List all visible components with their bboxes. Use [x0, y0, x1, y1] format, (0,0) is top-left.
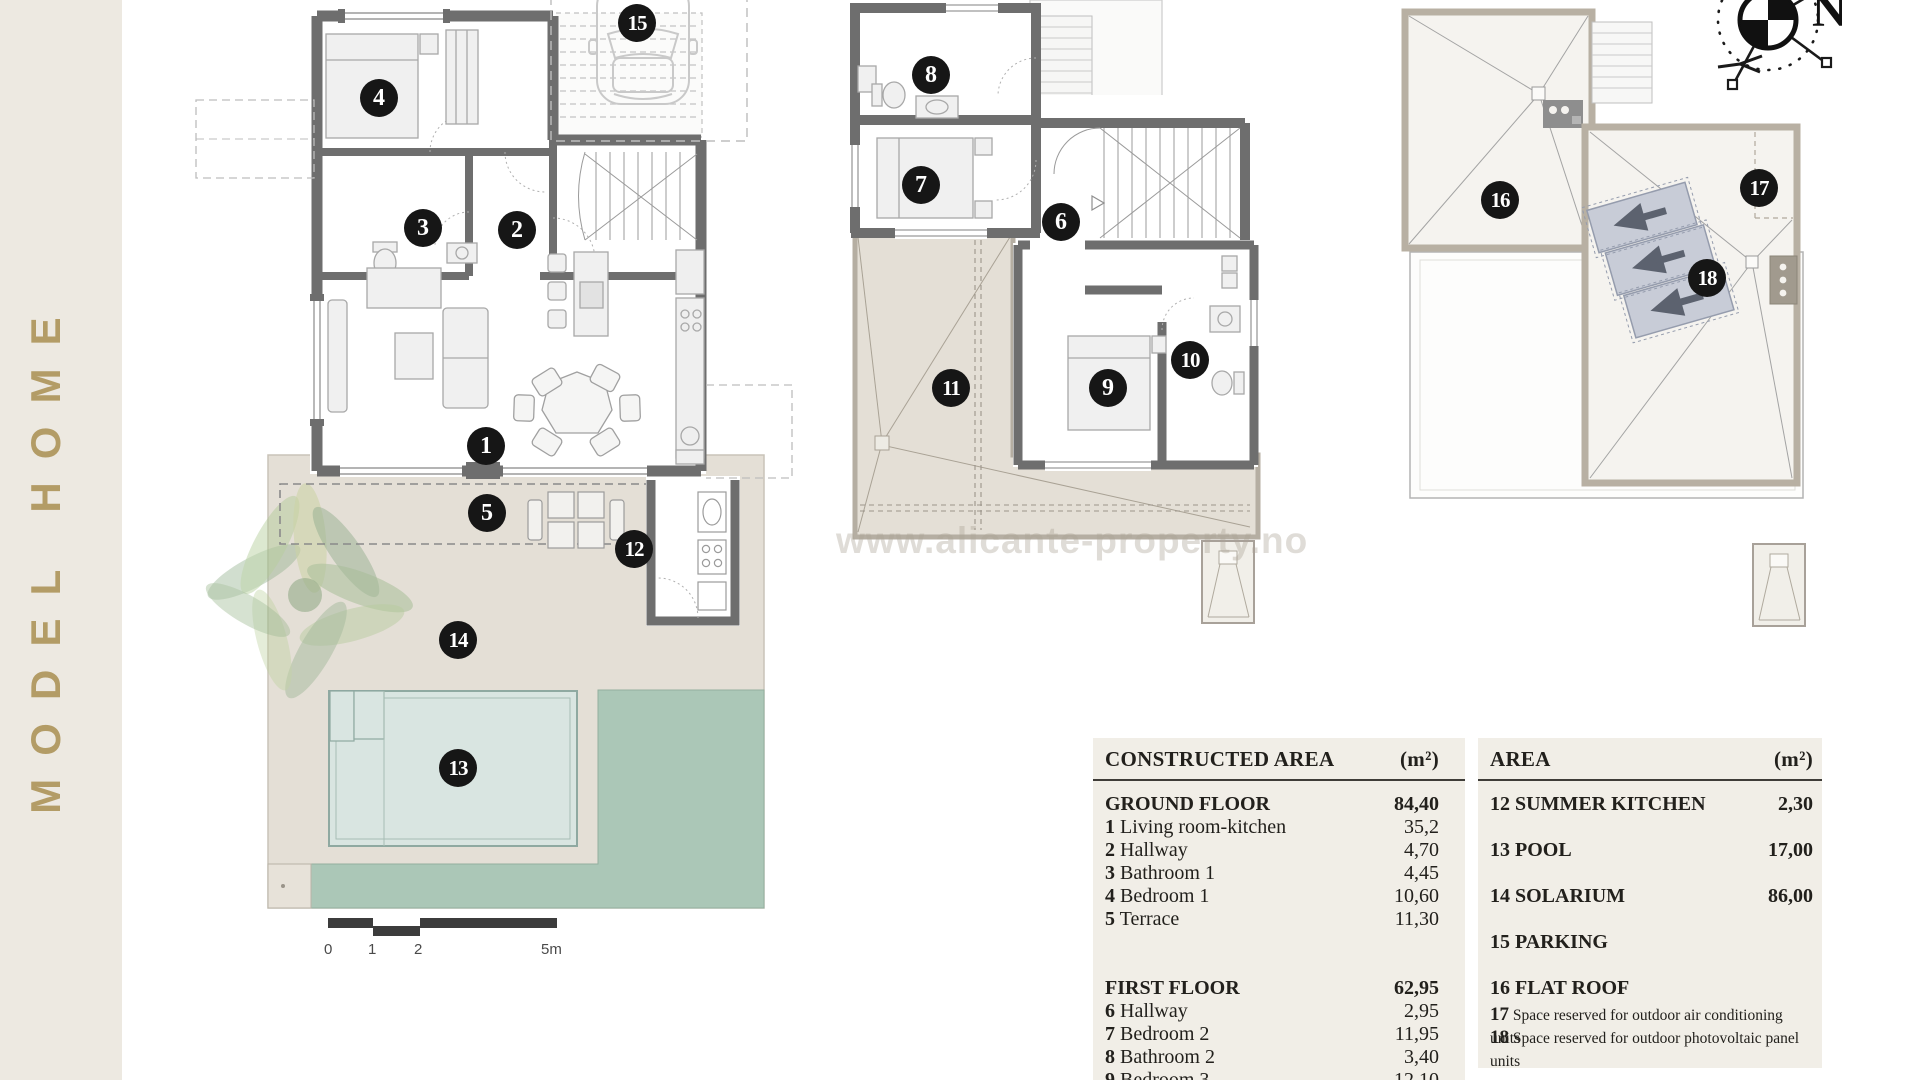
table-row: FIRST FLOOR62,95 [1093, 977, 1465, 1000]
area-unit: (m²) [1774, 747, 1813, 772]
table-row: GROUND FLOOR84,40 [1093, 793, 1465, 816]
room-marker-13: 13 [439, 749, 477, 787]
constructed-area-title: CONSTRUCTED AREA [1105, 747, 1334, 772]
room-marker-9: 9 [1089, 369, 1127, 407]
table-divider [1478, 779, 1822, 781]
table-row: 15 PARKING [1478, 931, 1822, 977]
scale-bar [328, 918, 557, 936]
compass-north-label: N [1812, 0, 1847, 37]
constructed-area-table: CONSTRUCTED AREA (m²) GROUND FLOOR84,401… [1093, 738, 1465, 1080]
table-row: 14 SOLARIUM86,00 [1478, 885, 1822, 931]
scale-label-5m: 5m [541, 941, 562, 958]
table-row: 4 Bedroom 110,60 [1093, 885, 1465, 908]
room-marker-16: 16 [1481, 181, 1519, 219]
table-row: 16 FLAT ROOF [1478, 977, 1822, 1003]
room-marker-4: 4 [360, 79, 398, 117]
table-row: 18 Space reserved for outdoor photovolta… [1478, 1026, 1822, 1049]
room-marker-5: 5 [468, 494, 506, 532]
compass-icon: N [1718, 0, 1847, 89]
table-row: 5 Terrace11,30 [1093, 908, 1465, 931]
room-marker-1: 1 [467, 427, 505, 465]
area-header: AREA (m²) [1478, 738, 1822, 772]
room-marker-6: 6 [1042, 203, 1080, 241]
constructed-area-unit: (m²) [1400, 747, 1439, 772]
table-row: 12 SUMMER KITCHEN2,30 [1478, 793, 1822, 839]
room-marker-17: 17 [1740, 169, 1778, 207]
ground-floor-plan [196, 0, 792, 936]
room-marker-14: 14 [439, 621, 477, 659]
table-divider [1093, 779, 1465, 781]
table-row: 6 Hallway2,95 [1093, 1000, 1465, 1023]
scale-label-0: 0 [324, 941, 332, 958]
constructed-area-header: CONSTRUCTED AREA (m²) [1093, 738, 1465, 772]
roof-plan [1405, 12, 1805, 626]
room-marker-3: 3 [404, 209, 442, 247]
area-table: AREA (m²) 12 SUMMER KITCHEN2,3013 POOL17… [1478, 738, 1822, 1068]
watermark: www.alicante-property.no [836, 520, 1256, 562]
room-marker-12: 12 [615, 530, 653, 568]
table-row: 17 Space reserved for outdoor air condit… [1478, 1003, 1822, 1026]
room-marker-10: 10 [1171, 341, 1209, 379]
scale-label-1: 1 [368, 941, 376, 958]
room-marker-8: 8 [912, 56, 950, 94]
table-row: 2 Hallway4,70 [1093, 839, 1465, 862]
table-row: 3 Bathroom 14,45 [1093, 862, 1465, 885]
room-marker-18: 18 [1688, 259, 1726, 297]
room-marker-15: 15 [618, 4, 656, 42]
room-marker-2: 2 [498, 211, 536, 249]
room-marker-11: 11 [932, 369, 970, 407]
page: MODEL HOME [0, 0, 1920, 1080]
table-row: 13 POOL17,00 [1478, 839, 1822, 885]
table-row: 8 Bathroom 23,40 [1093, 1046, 1465, 1069]
scale-label-2: 2 [414, 941, 422, 958]
table-row: 9 Bedroom 312,10 [1093, 1069, 1465, 1080]
table-row: 1 Living room-kitchen35,2 [1093, 816, 1465, 839]
room-marker-7: 7 [902, 166, 940, 204]
area-title: AREA [1490, 747, 1551, 772]
table-row: 7 Bedroom 211,95 [1093, 1023, 1465, 1046]
